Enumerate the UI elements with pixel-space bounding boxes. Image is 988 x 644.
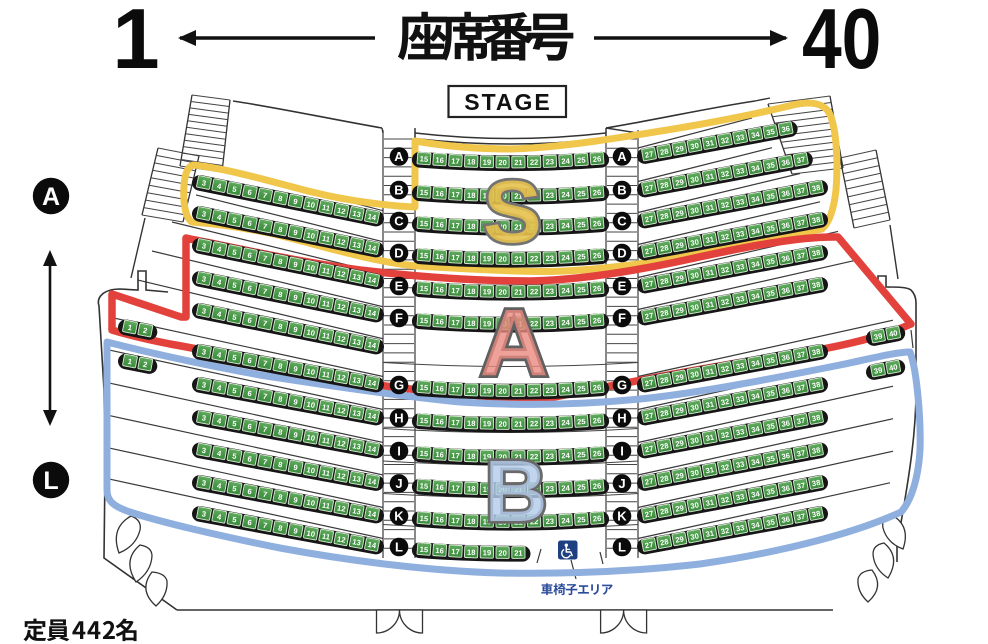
svg-text:15: 15: [419, 545, 429, 555]
svg-text:13: 13: [352, 537, 362, 547]
svg-text:B: B: [617, 182, 626, 197]
svg-text:32: 32: [720, 200, 730, 210]
svg-text:F: F: [395, 310, 403, 325]
svg-text:24: 24: [561, 253, 571, 262]
svg-text:28: 28: [659, 474, 669, 484]
svg-text:24: 24: [561, 385, 571, 394]
svg-text:16: 16: [435, 384, 444, 394]
svg-text:24: 24: [561, 451, 571, 460]
svg-text:27: 27: [644, 509, 654, 519]
svg-text:1: 1: [112, 0, 159, 87]
svg-text:13: 13: [352, 375, 362, 385]
svg-text:32: 32: [720, 495, 730, 505]
svg-text:38: 38: [811, 347, 821, 357]
svg-text:38: 38: [811, 280, 821, 290]
svg-text:30: 30: [690, 402, 700, 412]
svg-text:27: 27: [644, 476, 654, 486]
svg-text:38: 38: [811, 413, 821, 423]
svg-text:A: A: [394, 149, 404, 164]
svg-text:17: 17: [451, 483, 460, 492]
svg-text:25: 25: [577, 417, 587, 427]
svg-text:17: 17: [451, 221, 460, 230]
svg-text:15: 15: [419, 316, 429, 326]
svg-text:36: 36: [781, 124, 791, 134]
svg-text:28: 28: [659, 506, 669, 516]
svg-text:23: 23: [545, 254, 554, 263]
svg-text:29: 29: [675, 144, 685, 154]
svg-text:10: 10: [306, 327, 316, 337]
svg-text:30: 30: [690, 174, 700, 184]
svg-text:32: 32: [720, 397, 730, 407]
svg-text:37: 37: [796, 448, 806, 458]
svg-text:15: 15: [419, 251, 429, 261]
svg-text:13: 13: [352, 408, 362, 418]
svg-text:12: 12: [336, 302, 346, 312]
svg-text:10: 10: [306, 529, 316, 539]
svg-text:J: J: [395, 476, 402, 491]
svg-text:18: 18: [467, 517, 476, 526]
svg-text:26: 26: [592, 284, 601, 294]
svg-text:33: 33: [735, 523, 745, 533]
svg-text:19: 19: [483, 419, 492, 428]
svg-text:26: 26: [592, 154, 601, 164]
svg-text:26: 26: [592, 383, 601, 393]
svg-text:36: 36: [781, 418, 791, 428]
svg-text:37: 37: [796, 481, 806, 491]
svg-text:18: 18: [467, 386, 476, 395]
svg-text:12: 12: [336, 372, 346, 382]
svg-text:A: A: [42, 183, 60, 211]
svg-text:K: K: [394, 508, 404, 523]
svg-text:16: 16: [435, 450, 444, 460]
svg-text:26: 26: [592, 449, 601, 459]
svg-text:12: 12: [336, 471, 346, 481]
svg-text:21: 21: [514, 549, 523, 558]
svg-text:12: 12: [336, 405, 346, 415]
svg-text:32: 32: [720, 169, 730, 179]
svg-text:18: 18: [467, 452, 476, 461]
svg-text:36: 36: [781, 451, 791, 461]
svg-text:10: 10: [306, 465, 316, 475]
svg-text:36: 36: [781, 285, 791, 295]
svg-text:32: 32: [720, 364, 730, 374]
svg-text:17: 17: [451, 253, 460, 262]
svg-text:15: 15: [419, 449, 429, 459]
svg-text:28: 28: [659, 147, 669, 157]
svg-text:36: 36: [781, 220, 791, 230]
svg-text:29: 29: [675, 534, 685, 544]
svg-text:18: 18: [467, 191, 476, 200]
svg-text:27: 27: [644, 149, 654, 159]
svg-text:17: 17: [451, 418, 460, 427]
svg-text:12: 12: [336, 534, 346, 544]
svg-text:32: 32: [720, 232, 730, 242]
svg-text:20: 20: [498, 420, 507, 429]
svg-text:13: 13: [352, 240, 362, 250]
svg-text:32: 32: [720, 430, 730, 440]
svg-text:D: D: [617, 245, 626, 260]
svg-text:37: 37: [796, 383, 806, 393]
svg-text:27: 27: [644, 279, 654, 289]
svg-text:38: 38: [811, 478, 821, 488]
svg-text:10: 10: [306, 199, 316, 209]
svg-text:28: 28: [659, 408, 669, 418]
svg-text:26: 26: [592, 219, 601, 229]
svg-text:29: 29: [675, 471, 685, 481]
svg-text:37: 37: [796, 416, 806, 426]
svg-text:22: 22: [530, 419, 539, 428]
svg-text:28: 28: [659, 537, 669, 547]
svg-text:36: 36: [781, 157, 791, 167]
svg-text:12: 12: [336, 237, 346, 247]
svg-text:16: 16: [435, 417, 444, 427]
svg-text:24: 24: [561, 221, 571, 230]
svg-text:G: G: [617, 377, 627, 392]
svg-text:30: 30: [690, 531, 700, 541]
svg-text:E: E: [395, 278, 404, 293]
svg-text:29: 29: [675, 438, 685, 448]
svg-text:32: 32: [720, 462, 730, 472]
svg-text:25: 25: [577, 220, 587, 230]
svg-text:27: 27: [644, 540, 654, 550]
svg-text:17: 17: [451, 385, 460, 394]
svg-text:H: H: [617, 410, 626, 425]
svg-text:33: 33: [735, 166, 745, 176]
svg-text:10: 10: [306, 433, 316, 443]
svg-text:27: 27: [644, 444, 654, 454]
svg-text:29: 29: [675, 177, 685, 187]
svg-text:17: 17: [451, 516, 460, 525]
svg-text:25: 25: [577, 384, 587, 394]
svg-text:17: 17: [451, 156, 460, 165]
svg-text:L: L: [618, 539, 626, 554]
svg-text:16: 16: [435, 482, 444, 492]
svg-text:38: 38: [811, 215, 821, 225]
svg-text:J: J: [618, 476, 625, 491]
svg-text:H: H: [394, 410, 403, 425]
svg-text:18: 18: [467, 484, 476, 493]
svg-text:21: 21: [514, 420, 523, 429]
svg-text:32: 32: [720, 297, 730, 307]
svg-text:24: 24: [561, 318, 571, 327]
svg-text:30: 30: [690, 435, 700, 445]
svg-text:37: 37: [796, 186, 806, 196]
svg-text:L: L: [395, 539, 403, 554]
svg-text:29: 29: [675, 405, 685, 415]
svg-text:25: 25: [577, 252, 587, 262]
svg-text:B: B: [394, 182, 403, 197]
svg-text:24: 24: [561, 418, 571, 427]
svg-text:36: 36: [781, 352, 791, 362]
svg-text:33: 33: [735, 394, 745, 404]
svg-text:20: 20: [498, 549, 507, 558]
svg-text:33: 33: [735, 459, 745, 469]
svg-text:16: 16: [435, 285, 444, 295]
svg-text:30: 30: [690, 302, 700, 312]
svg-text:12: 12: [336, 503, 346, 513]
svg-text:28: 28: [659, 243, 669, 253]
svg-text:27: 27: [644, 214, 654, 224]
svg-text:15: 15: [419, 154, 429, 164]
svg-text:28: 28: [659, 308, 669, 318]
svg-text:39: 39: [873, 365, 883, 375]
svg-text:12: 12: [336, 334, 346, 344]
svg-text:13: 13: [352, 305, 362, 315]
svg-text:30: 30: [690, 468, 700, 478]
svg-text:32: 32: [720, 265, 730, 275]
svg-text:30: 30: [690, 369, 700, 379]
svg-text:26: 26: [592, 251, 601, 261]
svg-text:18: 18: [467, 419, 476, 428]
svg-text:33: 33: [735, 132, 745, 142]
svg-text:26: 26: [592, 316, 601, 326]
svg-text:15: 15: [419, 383, 429, 393]
svg-text:13: 13: [352, 474, 362, 484]
svg-text:18: 18: [467, 254, 476, 263]
svg-text:29: 29: [675, 208, 685, 218]
svg-text:13: 13: [352, 506, 362, 516]
svg-text:33: 33: [735, 492, 745, 502]
svg-text:33: 33: [735, 229, 745, 239]
svg-text:32: 32: [720, 135, 730, 145]
svg-text:I: I: [397, 443, 401, 458]
svg-text:28: 28: [659, 375, 669, 385]
svg-text:29: 29: [675, 240, 685, 250]
svg-text:24: 24: [561, 516, 571, 525]
svg-text:24: 24: [561, 190, 571, 199]
svg-text:24: 24: [561, 483, 571, 492]
svg-text:17: 17: [451, 451, 460, 460]
svg-text:F: F: [618, 310, 626, 325]
svg-text:15: 15: [419, 219, 429, 229]
svg-text:26: 26: [592, 188, 601, 198]
svg-text:25: 25: [577, 515, 587, 525]
svg-text:S: S: [483, 162, 542, 261]
svg-text:16: 16: [435, 515, 444, 525]
svg-text:38: 38: [811, 248, 821, 258]
svg-text:37: 37: [796, 251, 806, 261]
svg-text:33: 33: [735, 427, 745, 437]
svg-text:I: I: [620, 443, 624, 458]
svg-text:28: 28: [659, 276, 669, 286]
svg-text:18: 18: [467, 287, 476, 296]
svg-text:STAGE: STAGE: [464, 89, 552, 115]
svg-text:13: 13: [352, 272, 362, 282]
svg-text:29: 29: [675, 503, 685, 513]
svg-text:25: 25: [577, 317, 587, 327]
svg-text:23: 23: [545, 419, 554, 428]
svg-text:30: 30: [690, 500, 700, 510]
svg-text:26: 26: [592, 514, 601, 524]
svg-text:16: 16: [435, 546, 444, 556]
svg-text:28: 28: [659, 180, 669, 190]
svg-text:A: A: [617, 149, 627, 164]
svg-text:29: 29: [675, 305, 685, 315]
svg-text:16: 16: [435, 220, 444, 230]
svg-text:36: 36: [781, 514, 791, 524]
svg-text:28: 28: [659, 441, 669, 451]
svg-text:26: 26: [592, 481, 601, 491]
svg-text:C: C: [617, 213, 627, 228]
svg-text:15: 15: [419, 188, 429, 198]
svg-text:18: 18: [467, 548, 476, 557]
svg-text:28: 28: [659, 211, 669, 221]
svg-text:10: 10: [306, 295, 316, 305]
svg-text:23: 23: [545, 222, 554, 231]
svg-text:D: D: [394, 245, 403, 260]
svg-text:23: 23: [545, 157, 554, 166]
svg-text:40: 40: [802, 0, 881, 86]
svg-text:10: 10: [306, 400, 316, 410]
svg-text:36: 36: [781, 385, 791, 395]
svg-text:33: 33: [735, 262, 745, 272]
svg-text:13: 13: [352, 209, 362, 219]
svg-text:37: 37: [796, 350, 806, 360]
svg-text:30: 30: [690, 270, 700, 280]
svg-text:27: 27: [644, 183, 654, 193]
svg-text:38: 38: [811, 183, 821, 193]
svg-text:23: 23: [545, 191, 554, 200]
svg-text:E: E: [618, 278, 627, 293]
svg-text:25: 25: [577, 482, 587, 492]
svg-text:16: 16: [435, 252, 444, 262]
svg-text:12: 12: [336, 438, 346, 448]
svg-text:25: 25: [577, 450, 587, 460]
svg-text:36: 36: [781, 253, 791, 263]
svg-text:16: 16: [435, 189, 444, 199]
svg-text:10: 10: [306, 230, 316, 240]
svg-text:18: 18: [467, 157, 476, 166]
svg-text:29: 29: [675, 372, 685, 382]
svg-text:17: 17: [451, 547, 460, 556]
svg-text:16: 16: [435, 317, 444, 327]
svg-text:27: 27: [644, 246, 654, 256]
svg-text:15: 15: [419, 514, 429, 524]
svg-text:33: 33: [735, 361, 745, 371]
svg-text:15: 15: [419, 284, 429, 294]
svg-text:37: 37: [796, 512, 806, 522]
svg-text:13: 13: [352, 337, 362, 347]
svg-text:38: 38: [811, 509, 821, 519]
svg-text:18: 18: [467, 319, 476, 328]
svg-text:K: K: [617, 508, 627, 523]
svg-text:27: 27: [644, 378, 654, 388]
svg-text:L: L: [43, 467, 58, 495]
svg-text:40: 40: [888, 328, 898, 338]
svg-text:B: B: [485, 443, 548, 540]
svg-text:25: 25: [577, 155, 587, 165]
svg-text:38: 38: [811, 380, 821, 390]
svg-text:39: 39: [873, 331, 883, 341]
svg-text:26: 26: [592, 416, 601, 426]
svg-text:17: 17: [451, 286, 460, 295]
svg-text:33: 33: [735, 294, 745, 304]
svg-text:C: C: [394, 213, 404, 228]
svg-text:40: 40: [888, 362, 898, 372]
svg-text:30: 30: [690, 237, 700, 247]
svg-text:33: 33: [735, 197, 745, 207]
svg-text:16: 16: [435, 155, 444, 165]
svg-text:37: 37: [796, 283, 806, 293]
svg-text:24: 24: [561, 286, 571, 295]
svg-text:15: 15: [419, 416, 429, 426]
svg-text:A: A: [480, 290, 549, 396]
svg-text:30: 30: [690, 205, 700, 215]
svg-text:15: 15: [419, 481, 429, 491]
svg-text:12: 12: [336, 206, 346, 216]
svg-text:10: 10: [306, 262, 316, 272]
svg-text:29: 29: [675, 273, 685, 283]
svg-text:13: 13: [352, 441, 362, 451]
svg-text:G: G: [394, 377, 404, 392]
svg-text:38: 38: [811, 445, 821, 455]
svg-text:24: 24: [561, 156, 571, 165]
svg-text:17: 17: [451, 318, 460, 327]
svg-text:37: 37: [796, 218, 806, 228]
svg-text:30: 30: [690, 141, 700, 151]
svg-text:37: 37: [796, 155, 806, 165]
svg-text:12: 12: [336, 269, 346, 279]
svg-text:27: 27: [644, 311, 654, 321]
svg-text:10: 10: [306, 367, 316, 377]
svg-text:10: 10: [306, 498, 316, 508]
svg-text:36: 36: [781, 483, 791, 493]
svg-text:27: 27: [644, 411, 654, 421]
svg-text:25: 25: [577, 189, 587, 199]
svg-text:19: 19: [483, 548, 492, 557]
svg-text:18: 18: [467, 222, 476, 231]
svg-text:17: 17: [451, 190, 460, 199]
svg-text:36: 36: [781, 188, 791, 198]
svg-text:32: 32: [720, 526, 730, 536]
svg-text:25: 25: [577, 285, 587, 295]
